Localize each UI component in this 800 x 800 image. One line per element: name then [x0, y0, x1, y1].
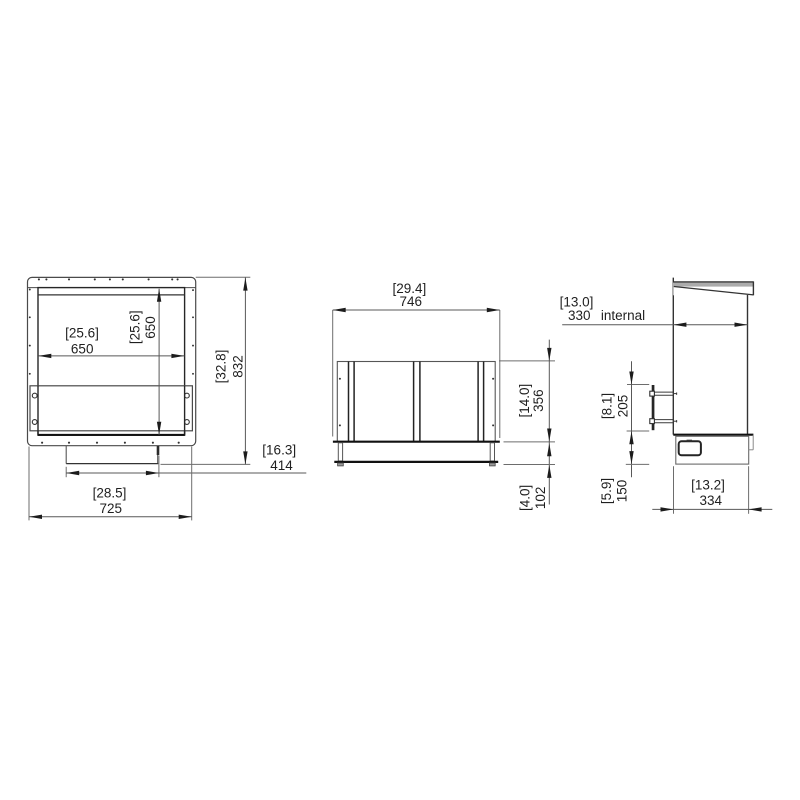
svg-text:832: 832 — [230, 355, 245, 378]
svg-text:[16.3]: [16.3] — [262, 443, 296, 458]
svg-text:[32.8]: [32.8] — [213, 350, 228, 384]
svg-text:725: 725 — [100, 501, 123, 516]
svg-text:internal: internal — [601, 308, 645, 323]
svg-text:[13.2]: [13.2] — [691, 478, 725, 493]
svg-text:[25.6]: [25.6] — [65, 326, 99, 341]
svg-text:330: 330 — [568, 308, 591, 323]
svg-text:[8.1]: [8.1] — [599, 393, 614, 419]
svg-text:[25.6]: [25.6] — [128, 310, 143, 344]
svg-text:334: 334 — [700, 493, 723, 508]
svg-text:205: 205 — [616, 395, 631, 418]
svg-text:[28.5]: [28.5] — [93, 486, 127, 501]
svg-text:102: 102 — [533, 487, 548, 510]
svg-text:[14.0]: [14.0] — [517, 384, 532, 418]
svg-text:746: 746 — [400, 294, 423, 309]
svg-text:650: 650 — [143, 316, 158, 339]
svg-text:650: 650 — [71, 341, 94, 356]
svg-text:414: 414 — [270, 458, 293, 473]
svg-text:[4.0]: [4.0] — [517, 485, 532, 511]
svg-text:356: 356 — [531, 389, 546, 412]
svg-text:150: 150 — [615, 480, 630, 503]
svg-text:[5.9]: [5.9] — [599, 478, 614, 504]
